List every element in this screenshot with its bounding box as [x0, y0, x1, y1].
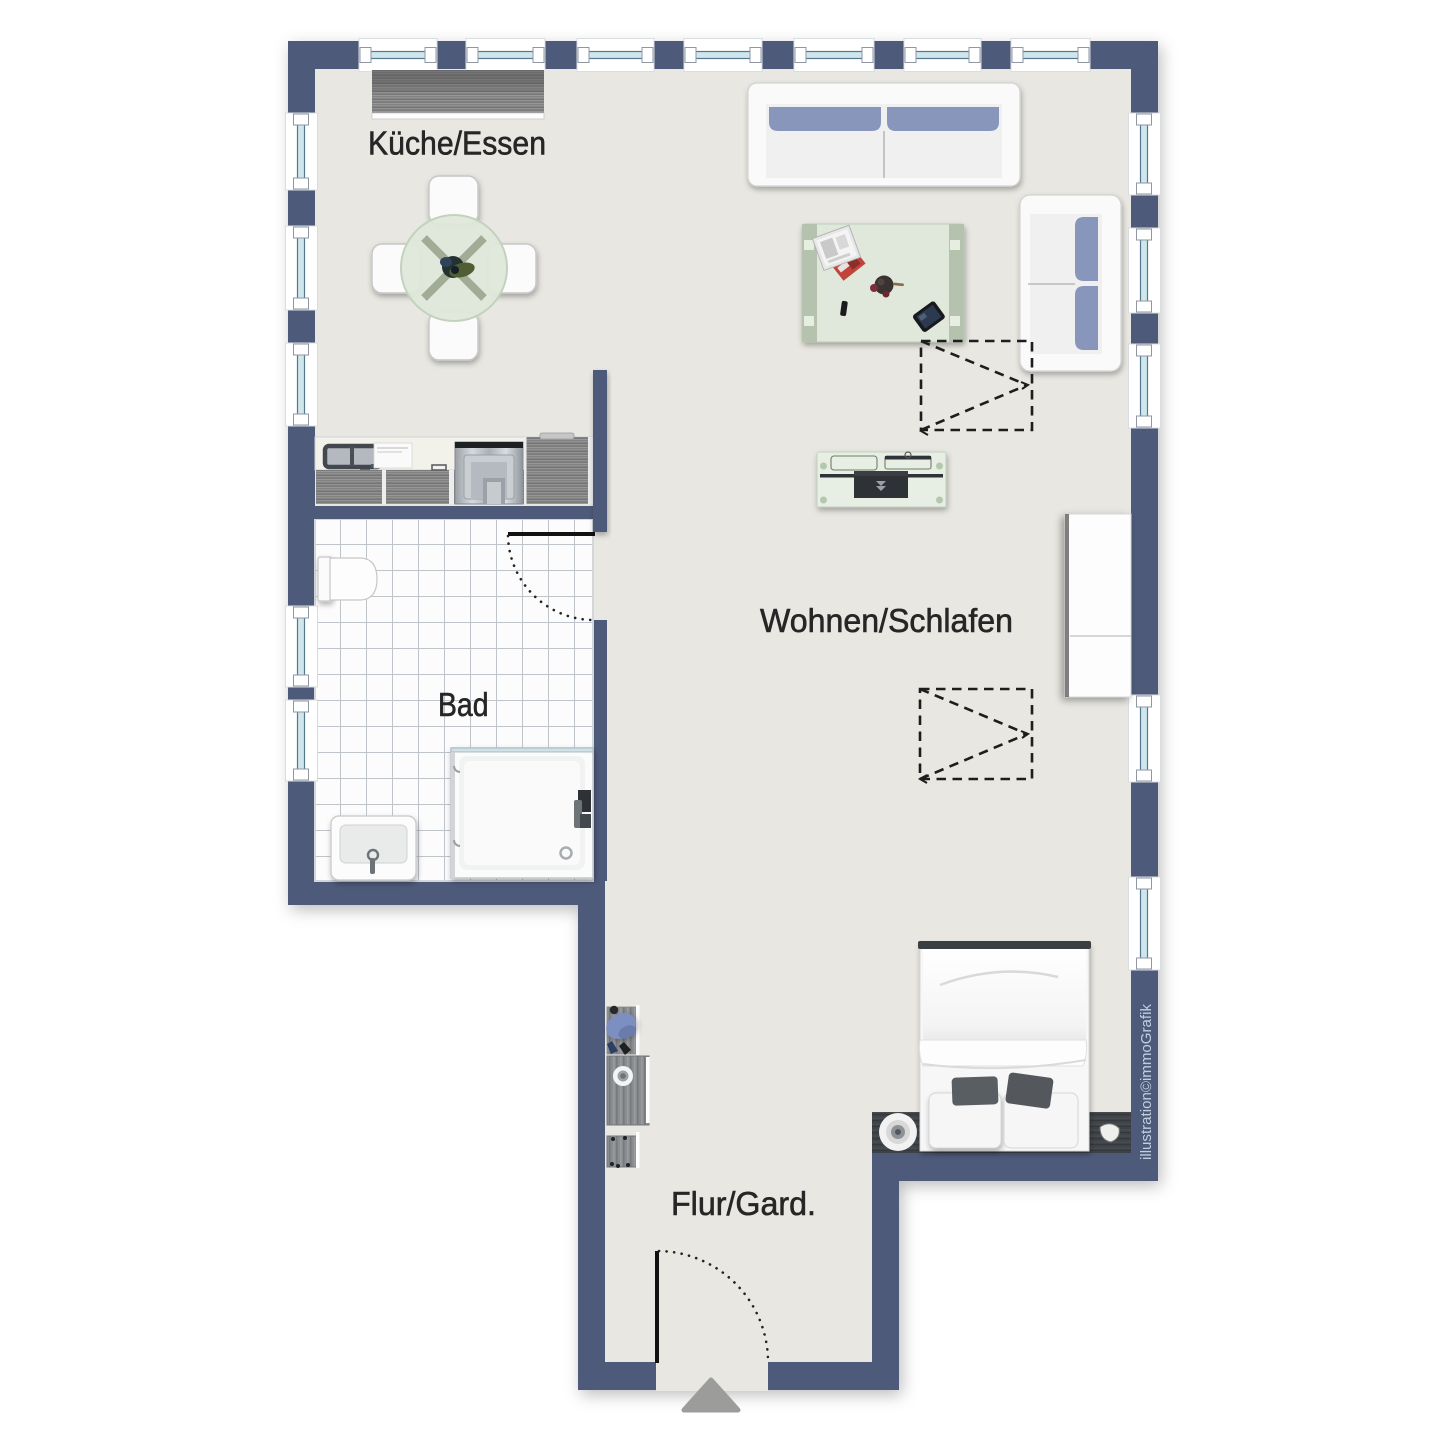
- svg-text:Flur/Gard.: Flur/Gard.: [671, 1186, 816, 1223]
- svg-text:illustration©immoGrafik: illustration©immoGrafik: [1138, 1004, 1155, 1160]
- svg-text:Wohnen/Schlafen: Wohnen/Schlafen: [760, 603, 1013, 640]
- svg-text:Bad: Bad: [438, 687, 489, 724]
- svg-text:Küche/Essen: Küche/Essen: [368, 126, 546, 163]
